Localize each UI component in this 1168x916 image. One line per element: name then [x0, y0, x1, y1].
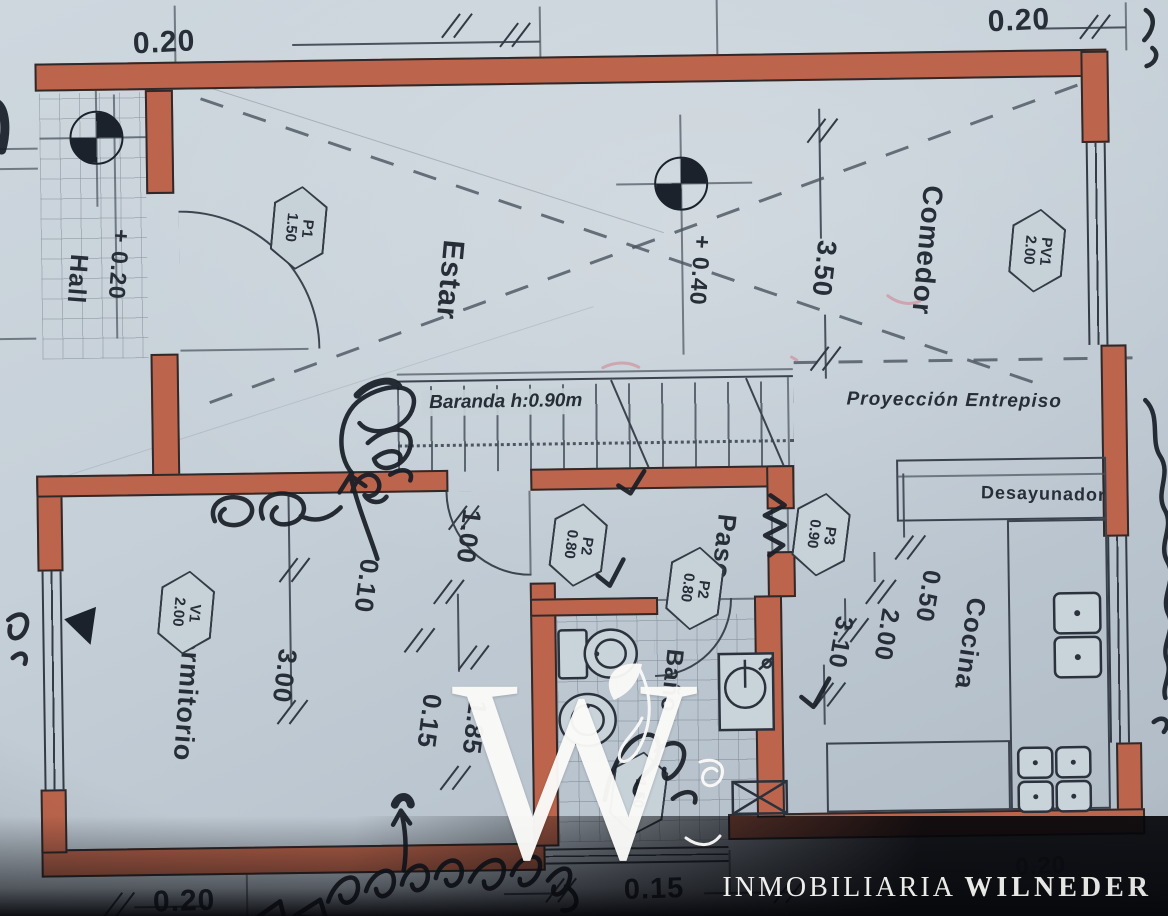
- pen-cursive-right-edge: [1145, 400, 1168, 732]
- baranda-note: Baranda h:0.90m: [421, 388, 590, 416]
- room-label-comedor: Comedor: [905, 169, 949, 331]
- wall-segment: [728, 808, 1145, 840]
- extension-line: [0, 338, 36, 341]
- extension-line: [1125, 2, 1128, 50]
- kitchen-counter-bottom: [826, 740, 1011, 813]
- room-label-cocina: Cocina: [947, 582, 994, 705]
- door-tag-p3: P30.90: [789, 490, 853, 580]
- entrepiso-note: Proyección Entrepiso: [839, 385, 1069, 416]
- dimension-line: [873, 552, 875, 582]
- tick-mark: [428, 582, 470, 603]
- watermark-initial: W: [452, 626, 697, 914]
- tick-mark: [398, 630, 440, 651]
- tick-mark: [804, 348, 846, 369]
- extension-line: [539, 7, 542, 59]
- wall-segment: [754, 595, 785, 817]
- window-dormitorio: [42, 571, 65, 789]
- dim-cocina-b: 2.00: [866, 588, 906, 681]
- brand-word-inmobiliaria: INMOBILIARIA: [722, 872, 954, 903]
- floorplan-photo: Baranda h:0.90m: [0, 0, 1168, 916]
- tick-mark: [98, 894, 140, 915]
- door-tag-p1: P11.50: [268, 184, 329, 273]
- extension-line: [0, 168, 38, 171]
- door-tag-p2: P20.80: [663, 543, 727, 633]
- wall-segment: [36, 470, 448, 498]
- pen-triangle: [252, 901, 285, 916]
- pen-scribble-e: [213, 493, 341, 526]
- door-tag-p2: P20.80: [546, 500, 610, 590]
- pen-triangle: [294, 900, 326, 916]
- pink-mark: [603, 363, 639, 368]
- dim-bottom-left: 0.20: [139, 885, 230, 916]
- level-value-living: + 0.40: [684, 225, 717, 317]
- pen-mark-top-right: [1144, 10, 1157, 66]
- room-label-desayunador: Desayunador: [968, 480, 1118, 507]
- pen-arrow-up: [395, 797, 411, 805]
- tick-mark: [436, 15, 478, 36]
- watermark-brand: INMOBILIARIA WILNEDER: [722, 872, 1152, 904]
- level-marker-living: [654, 156, 709, 211]
- pen-scribble-rev: [357, 381, 399, 395]
- dim-top-right: 0.20: [973, 4, 1064, 38]
- stair-rail-line: [397, 368, 793, 376]
- paper-crease: [149, 68, 664, 233]
- door-leaf-dormitorio: [528, 491, 531, 575]
- tick-mark: [1074, 17, 1116, 38]
- tick-mark: [494, 25, 536, 46]
- wall-segment: [151, 354, 181, 478]
- staircase: Baranda h:0.90m: [397, 375, 794, 473]
- extension-line: [0, 148, 38, 151]
- dim-wall-b: 0.15: [411, 675, 448, 768]
- dim-cocina-c: 3.10: [821, 596, 861, 689]
- watermark-logo: W: [452, 640, 697, 900]
- dim-cocina-a: 0.50: [908, 550, 948, 643]
- wall-segment: [530, 597, 658, 617]
- window-cocina: [1107, 536, 1130, 742]
- extension-line: [716, 0, 719, 54]
- kitchen-counter-right: [1007, 519, 1111, 810]
- brand-word-wilneder: WILNEDER: [964, 872, 1152, 903]
- window-swing-marker: [64, 607, 97, 645]
- tick-mark: [801, 120, 843, 141]
- tick-mark: [273, 560, 315, 581]
- smudge-left-edge: [0, 104, 5, 150]
- wall-segment: [766, 465, 795, 509]
- window-tag-pv1: PV12.00: [1006, 206, 1067, 295]
- wall-segment: [530, 465, 794, 491]
- window-tag-v1: V12.00: [155, 568, 216, 657]
- wall-segment: [145, 90, 174, 194]
- wall-segment: [1080, 51, 1109, 143]
- room-label-estar: Estar: [428, 219, 471, 341]
- wall-segment: [41, 789, 68, 853]
- window-comedor: [1086, 143, 1109, 345]
- door-leaf-p1: [180, 348, 308, 352]
- dim-comedor-depth: 3.50: [807, 222, 843, 314]
- pink-mark: [792, 357, 797, 360]
- dim-top-left: 0.20: [118, 26, 209, 60]
- pen-mark-left-edge: [8, 614, 28, 664]
- level-marker-crosshair: [679, 115, 684, 355]
- dim-wall-a: 0.10: [348, 540, 385, 633]
